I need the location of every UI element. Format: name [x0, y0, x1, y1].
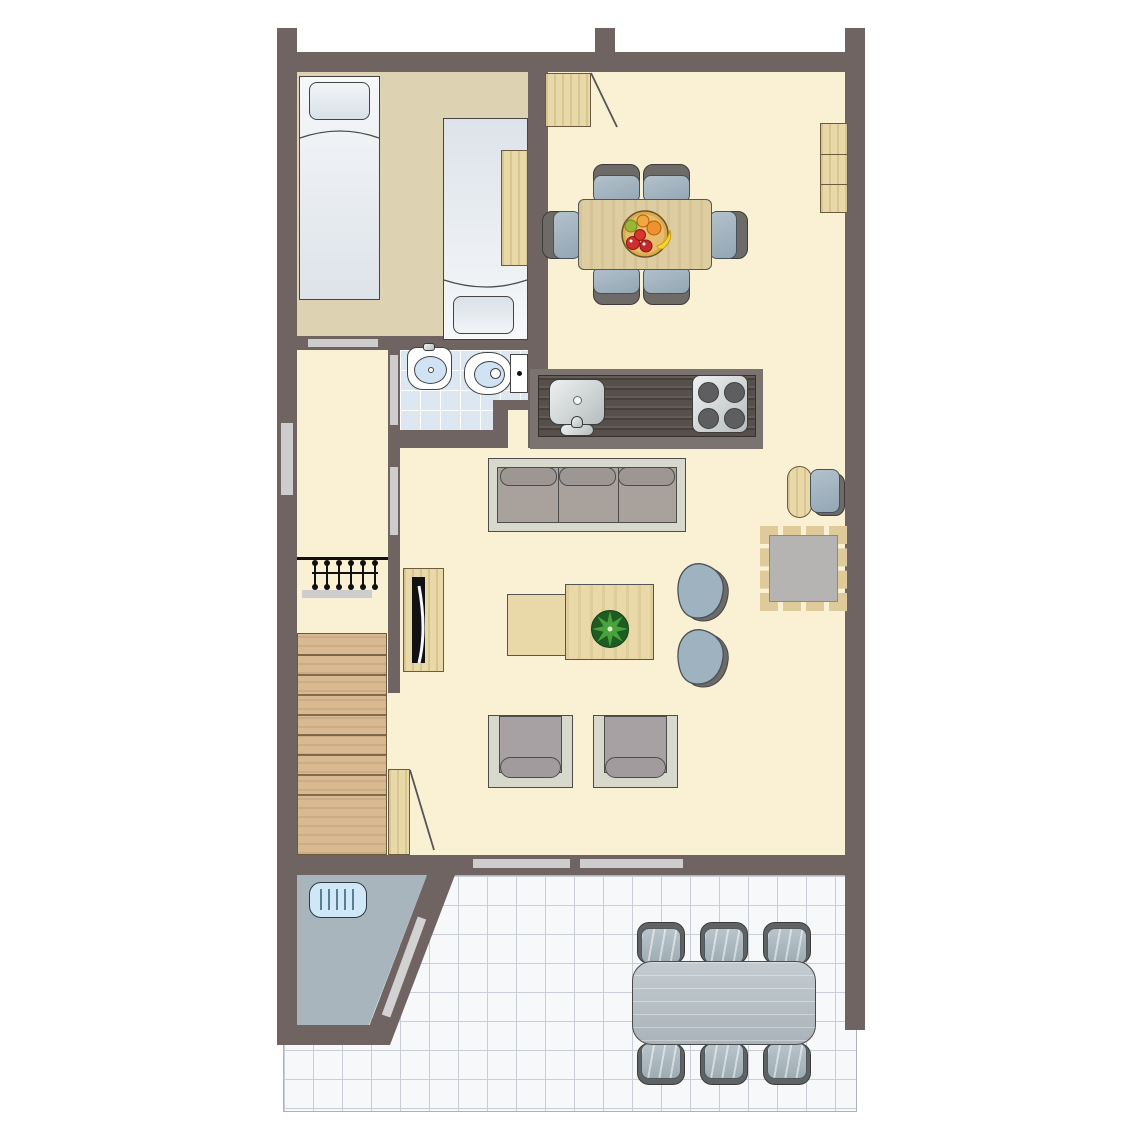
dining-chair-left-seat — [553, 211, 581, 259]
bed-left-pillow — [309, 82, 370, 120]
sofa-back-cushion — [559, 467, 616, 486]
dining-chair-right-seat — [709, 211, 737, 259]
floor-plan — [0, 0, 1145, 1145]
cabinet-shelf-line — [821, 154, 847, 155]
wall-stub-right — [845, 28, 865, 52]
terrace-chair-seat — [704, 1043, 744, 1079]
rug — [760, 526, 847, 611]
hook-knob — [336, 560, 342, 566]
toilet-cistern — [510, 354, 528, 393]
washbasin-drain — [428, 367, 434, 373]
wall-cabinet — [820, 123, 848, 213]
patio-door-right — [580, 859, 683, 868]
hook-knob — [324, 584, 330, 590]
terrace-chair-seat — [767, 928, 807, 964]
hook-knob — [360, 584, 366, 590]
sofa-back-cushion — [500, 467, 557, 486]
terrace-chair-seat — [641, 928, 681, 964]
hook — [362, 564, 364, 586]
bed-right-pillow — [453, 296, 514, 334]
dining-table — [578, 199, 712, 270]
hook-knob — [360, 560, 366, 566]
understairs-door-panel — [388, 769, 410, 855]
hook — [350, 564, 352, 586]
stair-tread — [298, 694, 386, 696]
hook — [314, 564, 316, 586]
hook-knob — [348, 584, 354, 590]
sofa-back-cushion — [618, 467, 675, 486]
burner — [698, 408, 719, 429]
stair-tread — [298, 714, 386, 716]
wall-stair-right — [388, 600, 400, 693]
dining-chair-bottom-2-seat — [643, 266, 690, 294]
side-chair — [810, 469, 840, 513]
hook — [326, 564, 328, 586]
wall-bath-corner-side — [493, 400, 508, 448]
wall-bath-bottom — [388, 430, 508, 448]
coat-hooks — [312, 560, 378, 590]
hall-living-door — [390, 467, 398, 535]
terrace-chair-seat — [704, 928, 744, 964]
toilet-button — [517, 371, 522, 376]
hook — [374, 564, 376, 586]
floor-notch — [508, 410, 528, 448]
stove — [692, 375, 748, 433]
burner — [724, 382, 745, 403]
hook-knob — [312, 560, 318, 566]
toilet-drain — [490, 368, 501, 379]
rug-center — [769, 535, 838, 602]
hook-knob — [348, 560, 354, 566]
hook-knob — [336, 584, 342, 590]
toilet-bowl — [464, 352, 512, 395]
hall-bottom-threshold — [302, 590, 372, 598]
terrace-chair-seat — [767, 1043, 807, 1079]
grate-slats — [320, 889, 358, 910]
wall-storage-bottom — [277, 1025, 390, 1045]
stairs — [297, 633, 387, 855]
armchair-right-pillow — [605, 757, 666, 778]
ottoman — [787, 466, 812, 518]
coffee-table-large — [565, 584, 654, 660]
washbasin — [407, 347, 452, 390]
washbasin-faucet — [423, 343, 435, 351]
stair-tread — [298, 654, 386, 656]
hook-knob — [324, 560, 330, 566]
nightstand — [501, 150, 528, 266]
bathroom-door — [390, 355, 398, 425]
hall-window — [281, 423, 293, 495]
tv — [412, 577, 425, 663]
patio-door-left — [473, 859, 570, 868]
hook-knob — [312, 584, 318, 590]
hook-knob — [372, 584, 378, 590]
armchair-left-pillow — [500, 757, 561, 778]
sink-drain — [573, 396, 582, 405]
entry-door-panel — [545, 73, 591, 127]
stair-tread — [298, 794, 386, 796]
stair-tread — [298, 754, 386, 756]
terrace-table — [632, 961, 816, 1045]
wall-right — [845, 52, 865, 1030]
terrace-chair-seat — [641, 1043, 681, 1079]
burner — [698, 382, 719, 403]
wall-left — [277, 28, 297, 1045]
cabinet-shelf-line — [821, 184, 847, 185]
dining-chair-bottom-1-seat — [593, 266, 640, 294]
floor-grate — [309, 882, 367, 918]
bedroom-door-threshold — [308, 339, 378, 347]
hook-knob — [372, 560, 378, 566]
coffee-table-small — [507, 594, 569, 656]
sink-faucet — [571, 416, 583, 428]
stair-tread — [298, 674, 386, 676]
stair-tread — [298, 774, 386, 776]
stair-tread — [298, 734, 386, 736]
burner — [724, 408, 745, 429]
wall-living-bottom — [277, 855, 865, 875]
wall-top — [277, 52, 865, 72]
wall-stub-middle — [595, 28, 615, 52]
hook — [338, 564, 340, 586]
